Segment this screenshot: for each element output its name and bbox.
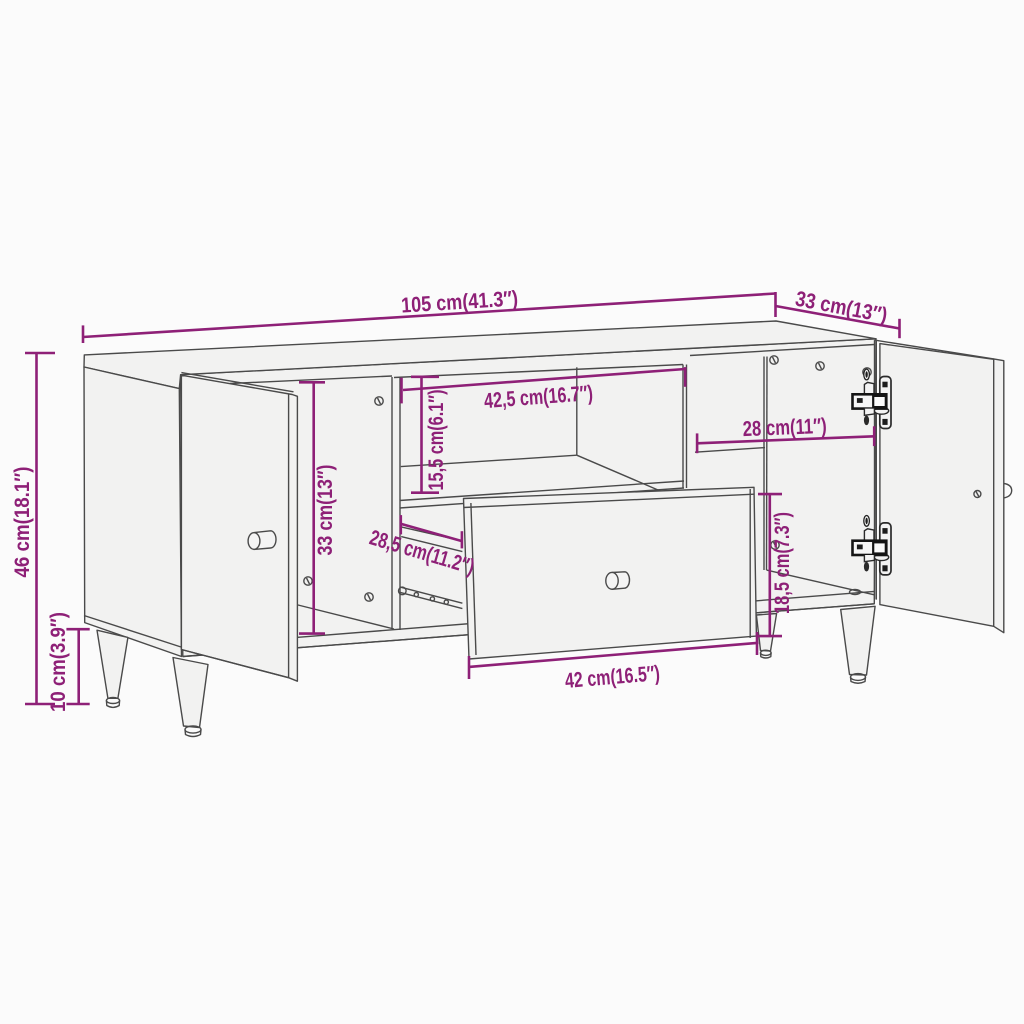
svg-text:33 cm(13″): 33 cm(13″) bbox=[313, 465, 337, 556]
svg-text:18,5 cm(7.3″): 18,5 cm(7.3″) bbox=[770, 512, 794, 614]
svg-text:28 cm(11″): 28 cm(11″) bbox=[742, 414, 827, 441]
svg-text:46 cm(18.1″): 46 cm(18.1″) bbox=[10, 467, 34, 578]
svg-text:15,5 cm(6.1″): 15,5 cm(6.1″) bbox=[424, 390, 448, 491]
svg-text:10 cm(3.9″): 10 cm(3.9″) bbox=[46, 612, 70, 712]
